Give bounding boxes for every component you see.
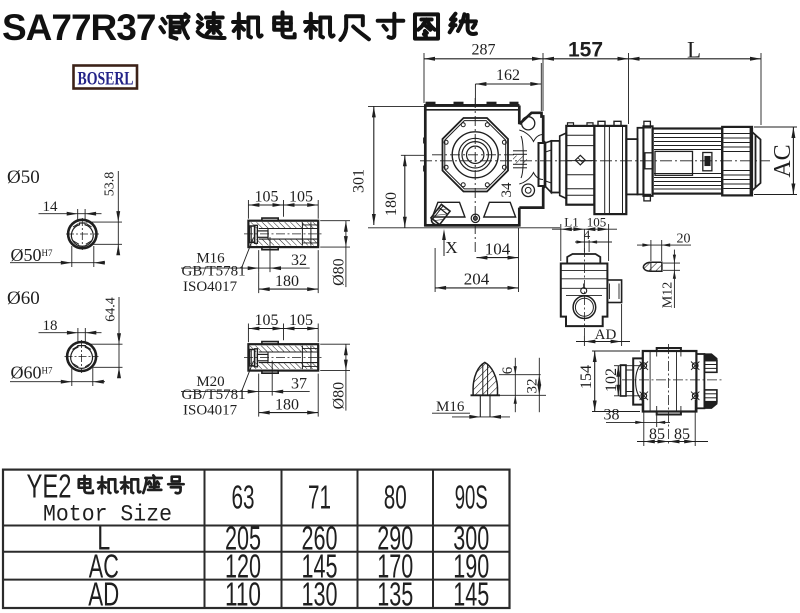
- svg-text:ISO4017: ISO4017: [183, 403, 238, 419]
- svg-text:105: 105: [289, 312, 313, 329]
- svg-text:YE2: YE2: [27, 468, 72, 505]
- svg-text:301: 301: [351, 169, 368, 193]
- svg-text:64.4: 64.4: [104, 297, 119, 322]
- svg-text:85: 85: [649, 426, 665, 443]
- svg-text:GB/T5781: GB/T5781: [182, 264, 246, 280]
- svg-text:38: 38: [604, 407, 620, 424]
- svg-text:6: 6: [500, 366, 516, 374]
- svg-text:20: 20: [677, 232, 691, 247]
- svg-text:105: 105: [255, 312, 279, 329]
- svg-text:14: 14: [43, 199, 59, 215]
- svg-text:Ø80: Ø80: [331, 258, 348, 286]
- svg-text:180: 180: [275, 273, 299, 290]
- svg-text:162: 162: [496, 67, 520, 84]
- svg-text:L: L: [687, 38, 701, 63]
- svg-text:32: 32: [291, 252, 307, 269]
- svg-text:Ø80: Ø80: [331, 382, 348, 410]
- svg-text:34: 34: [499, 182, 515, 198]
- svg-text:204: 204: [464, 270, 490, 289]
- svg-text:M16: M16: [436, 399, 465, 415]
- svg-text:Ø50: Ø50: [7, 167, 40, 188]
- svg-text:105: 105: [255, 189, 279, 206]
- svg-text:63: 63: [232, 479, 255, 516]
- svg-text:4: 4: [584, 227, 591, 242]
- svg-text:130: 130: [302, 576, 338, 613]
- svg-text:135: 135: [377, 576, 413, 613]
- svg-text:154: 154: [578, 365, 595, 389]
- svg-text:80: 80: [384, 479, 407, 516]
- svg-text:104: 104: [485, 240, 511, 259]
- svg-text:145: 145: [453, 576, 489, 613]
- svg-text:AD: AD: [595, 327, 617, 343]
- svg-text:180: 180: [275, 397, 299, 414]
- svg-text:105: 105: [289, 189, 313, 206]
- svg-text:X: X: [445, 238, 457, 257]
- svg-text:32: 32: [525, 379, 541, 394]
- svg-text:BOSERL: BOSERL: [78, 69, 134, 90]
- svg-text:L1: L1: [564, 215, 578, 230]
- svg-text:180: 180: [383, 192, 400, 216]
- svg-text:M12: M12: [661, 282, 676, 308]
- svg-text:287: 287: [472, 42, 496, 59]
- svg-text:85: 85: [674, 426, 690, 443]
- svg-text:18: 18: [43, 318, 58, 334]
- svg-text:GB/T5781: GB/T5781: [182, 387, 246, 403]
- svg-text:Ø60: Ø60: [7, 288, 40, 309]
- svg-text:ISO4017: ISO4017: [183, 279, 238, 295]
- svg-text:71: 71: [308, 479, 331, 516]
- svg-text:AC: AC: [770, 144, 796, 177]
- svg-text:37: 37: [291, 376, 307, 393]
- svg-text:53.8: 53.8: [103, 172, 118, 197]
- svg-text:SA77R37: SA77R37: [2, 7, 155, 48]
- svg-text:102: 102: [603, 368, 620, 392]
- svg-text:AD: AD: [88, 576, 119, 613]
- svg-text:90S: 90S: [455, 479, 488, 516]
- svg-text:110: 110: [225, 576, 261, 613]
- svg-text:157: 157: [568, 39, 603, 62]
